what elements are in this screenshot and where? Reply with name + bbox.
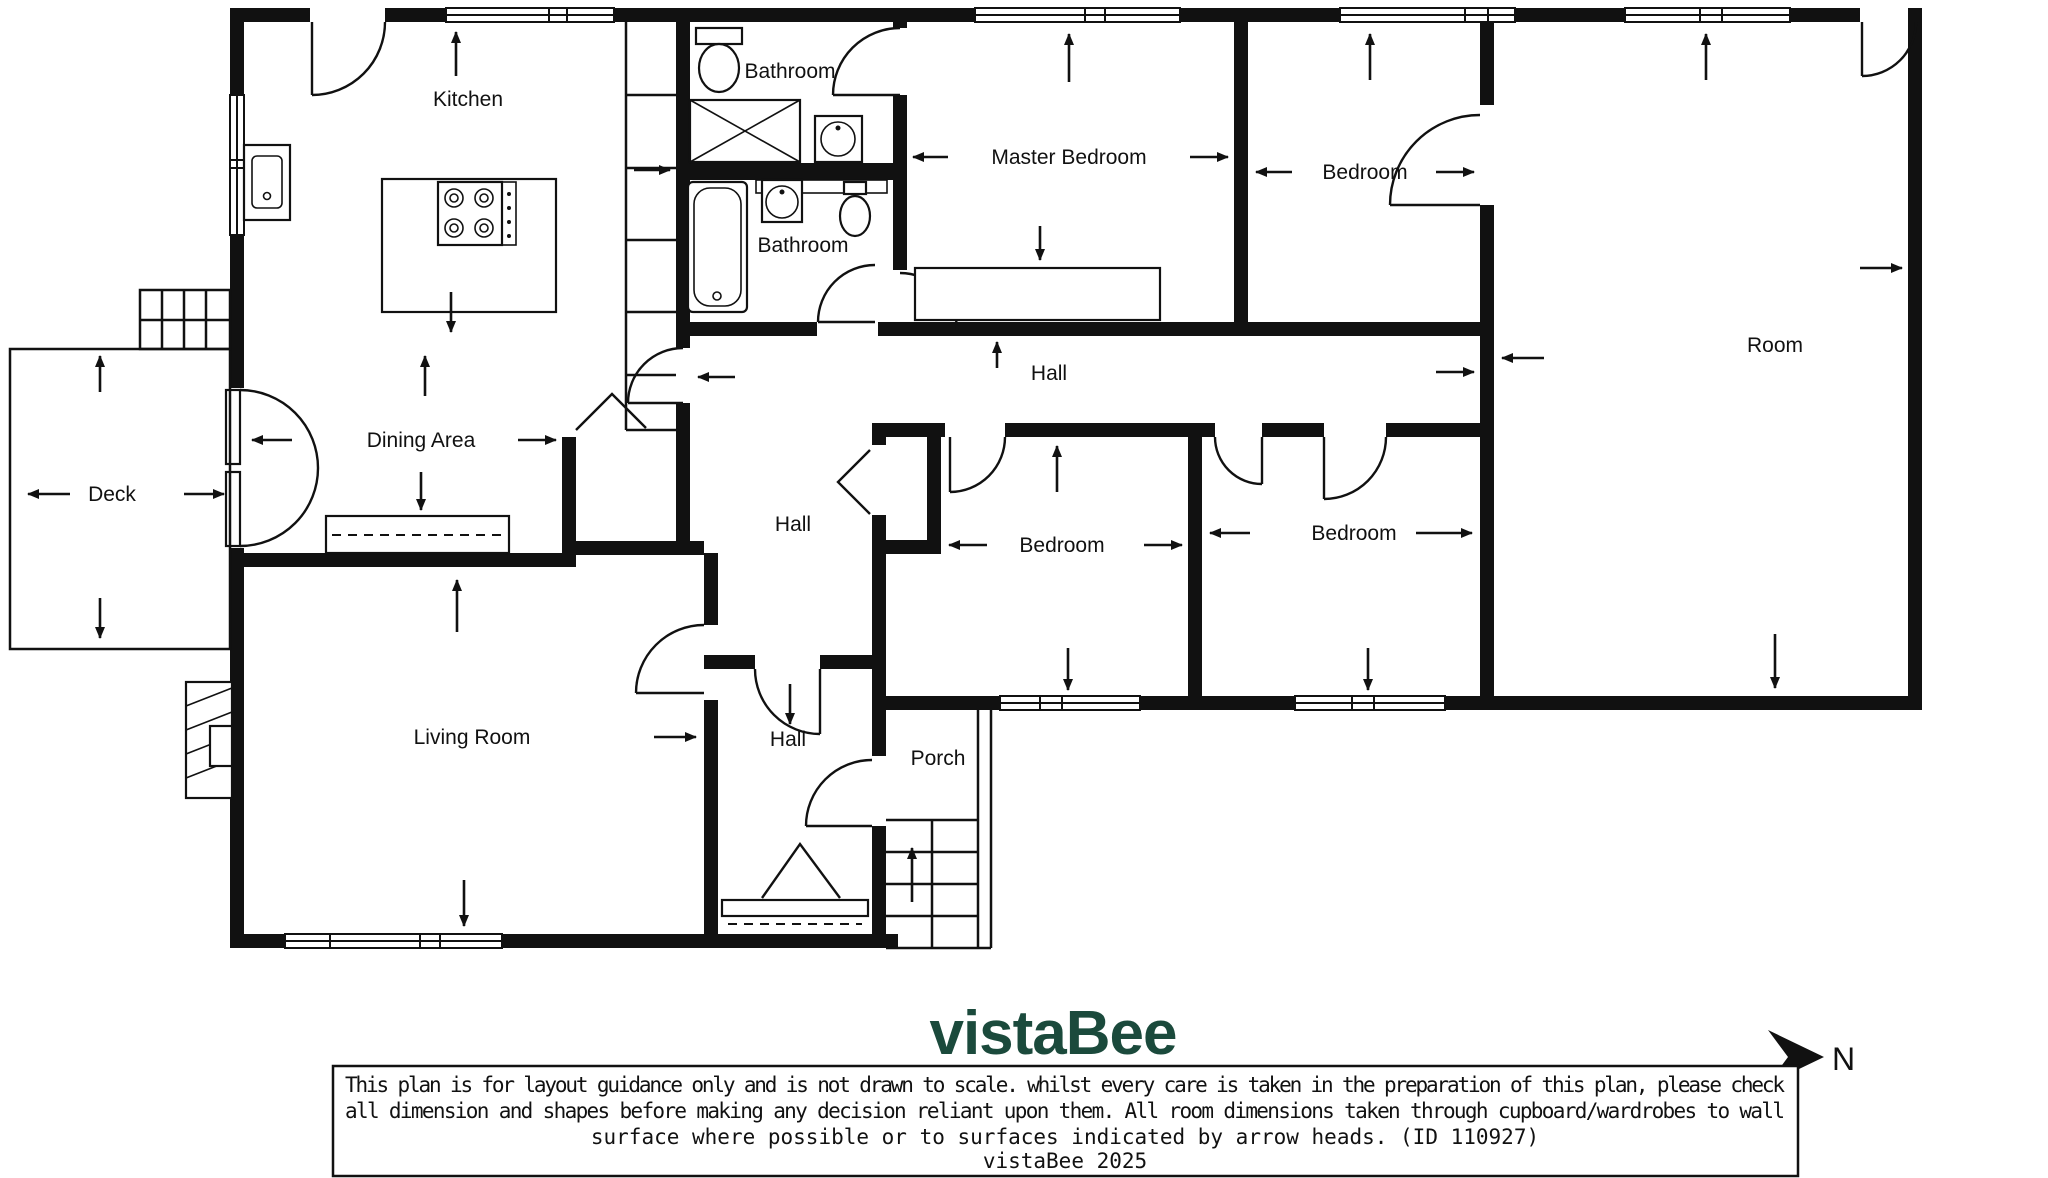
room-label-living-room: Living Room bbox=[414, 726, 531, 749]
room-label-deck: Deck bbox=[88, 483, 136, 506]
room-label-master-bedroom: Master Bedroom bbox=[991, 146, 1146, 169]
porch-structure bbox=[886, 710, 991, 948]
window-living-bottom bbox=[285, 934, 502, 948]
toilet-mid bbox=[840, 182, 870, 236]
room-label-bathroom-mid: Bathroom bbox=[757, 234, 848, 257]
door-room-top-right bbox=[1862, 22, 1916, 76]
window-bedroom-top bbox=[1340, 8, 1515, 22]
front-door-threshold bbox=[722, 900, 868, 924]
room-label-dining-area: Dining Area bbox=[367, 429, 476, 452]
kitchen-counter-column bbox=[626, 22, 676, 430]
room-label-hall-lower: Hall bbox=[770, 728, 806, 751]
disclaimer-line-2: all dimension and shapes before making a… bbox=[345, 1099, 1785, 1123]
door-hall-to-porch bbox=[806, 760, 872, 826]
window-master-top bbox=[975, 8, 1180, 22]
sink-bathroom-mid bbox=[762, 180, 802, 222]
kitchen-sink bbox=[244, 145, 290, 220]
window-kitchen-top bbox=[446, 8, 614, 22]
deck bbox=[10, 290, 230, 649]
door-hall-closet-angled bbox=[838, 450, 870, 514]
fireplace bbox=[186, 682, 232, 798]
shower bbox=[690, 100, 800, 162]
room-label-porch: Porch bbox=[911, 747, 966, 770]
room-label-bathroom-top: Bathroom bbox=[744, 60, 835, 83]
deck-steps bbox=[140, 290, 230, 349]
toilet-top bbox=[696, 28, 742, 92]
sink-bathroom-top bbox=[815, 116, 862, 162]
door-room-from-bedroom bbox=[1390, 115, 1480, 205]
room-label-bedroom-top-right: Bedroom bbox=[1322, 161, 1407, 184]
door-dining-closet-angled bbox=[576, 394, 646, 430]
door-bedroom-mid-right-closet bbox=[1324, 437, 1386, 499]
room-label-bedroom-mid-right: Bedroom bbox=[1311, 522, 1396, 545]
door-bedroom-mid-right bbox=[1215, 437, 1262, 484]
room-labels: Kitchen Bathroom Master Bedroom Bedroom … bbox=[88, 60, 1803, 770]
footer: vistaBee N This plan is for layout guida… bbox=[333, 999, 1855, 1176]
window-bedroom-mr-bottom bbox=[1295, 696, 1445, 710]
door-bathroom-mid bbox=[818, 265, 875, 322]
room-label-hall-upper: Hall bbox=[1031, 362, 1067, 385]
disclaimer-line-3: surface where possible or to surfaces in… bbox=[591, 1125, 1539, 1149]
disclaimer-line-1: This plan is for layout guidance only an… bbox=[345, 1073, 1785, 1097]
room-label-hall-mid: Hall bbox=[775, 513, 811, 536]
north-label: N bbox=[1832, 1041, 1855, 1077]
door-living-room bbox=[636, 625, 704, 693]
window-kitchen-left bbox=[230, 95, 244, 235]
room-label-bedroom-mid-left: Bedroom bbox=[1019, 534, 1104, 557]
bathtub bbox=[688, 182, 747, 312]
dimension-arrows bbox=[28, 32, 1902, 926]
porch-stairs bbox=[886, 820, 978, 948]
disclaimer-box: This plan is for layout guidance only an… bbox=[333, 1066, 1798, 1176]
window-bedroom-ml-bottom bbox=[1000, 696, 1140, 710]
french-doors-deck bbox=[226, 390, 318, 546]
room-label-kitchen: Kitchen bbox=[433, 88, 503, 111]
window-room-top bbox=[1625, 8, 1790, 22]
door-hall-lower bbox=[755, 669, 820, 734]
floor-plan-page: Kitchen Bathroom Master Bedroom Bedroom … bbox=[0, 0, 2048, 1178]
door-kitchen-top bbox=[312, 22, 385, 95]
disclaimer-credit: vistaBee 2025 bbox=[983, 1149, 1147, 1173]
door-bedroom-mid-left bbox=[950, 437, 1005, 492]
vistabee-logo: vistaBee bbox=[929, 999, 1176, 1068]
room-label-room: Room bbox=[1747, 334, 1803, 357]
front-door-open-leaves bbox=[762, 844, 840, 898]
floorplan-svg: Kitchen Bathroom Master Bedroom Bedroom … bbox=[0, 0, 2048, 1178]
door-bathroom-top bbox=[833, 28, 900, 95]
kitchen-island-stove bbox=[382, 179, 556, 312]
sideboard-dining bbox=[326, 516, 509, 553]
wardrobe-master bbox=[915, 268, 1160, 320]
